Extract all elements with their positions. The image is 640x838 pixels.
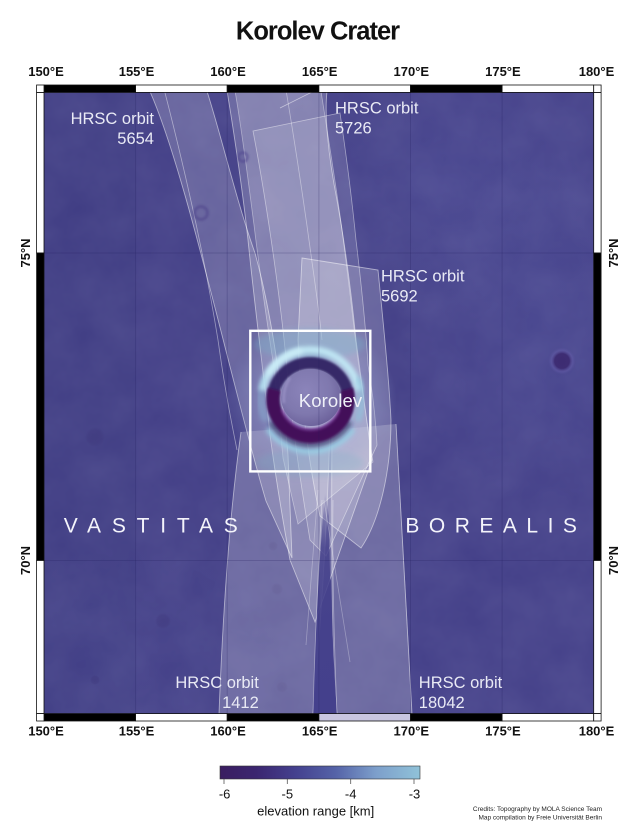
- svg-text:1412: 1412: [222, 694, 259, 712]
- svg-text:HRSC orbit: HRSC orbit: [419, 674, 503, 692]
- svg-text:175°E: 175°E: [485, 723, 521, 738]
- svg-text:165°E: 165°E: [302, 723, 338, 738]
- svg-text:150°E: 150°E: [28, 723, 64, 738]
- svg-text:Credits: Topography by MOLA Sc: Credits: Topography by MOLA Science Team: [473, 806, 602, 813]
- svg-text:150°E: 150°E: [28, 64, 64, 79]
- svg-text:155°E: 155°E: [119, 723, 155, 738]
- svg-text:-4: -4: [345, 787, 357, 802]
- svg-text:5726: 5726: [335, 120, 372, 138]
- svg-text:180°E: 180°E: [579, 64, 615, 79]
- svg-text:BOREALIS: BOREALIS: [405, 514, 586, 537]
- svg-text:175°E: 175°E: [485, 64, 521, 79]
- svg-text:VASTITAS: VASTITAS: [64, 514, 249, 537]
- svg-text:Korolev Crater: Korolev Crater: [236, 18, 400, 46]
- svg-text:170°E: 170°E: [394, 64, 430, 79]
- svg-text:70°N: 70°N: [18, 546, 33, 575]
- svg-text:5654: 5654: [117, 130, 154, 148]
- svg-text:170°E: 170°E: [394, 723, 430, 738]
- svg-text:-5: -5: [282, 787, 294, 802]
- svg-text:160°E: 160°E: [210, 723, 246, 738]
- svg-text:155°E: 155°E: [119, 64, 155, 79]
- svg-text:HRSC orbit: HRSC orbit: [71, 110, 155, 128]
- svg-text:165°E: 165°E: [302, 64, 338, 79]
- svg-text:Korolev: Korolev: [299, 390, 363, 411]
- svg-text:HRSC orbit: HRSC orbit: [381, 268, 465, 286]
- svg-text:75°N: 75°N: [18, 238, 33, 267]
- svg-text:Map compilation by Freie Unive: Map compilation by Freie Universität Ber…: [478, 815, 602, 822]
- svg-text:18042: 18042: [419, 694, 465, 712]
- svg-text:elevation range [km]: elevation range [km]: [257, 804, 374, 819]
- svg-text:HRSC orbit: HRSC orbit: [175, 674, 259, 692]
- svg-text:-6: -6: [219, 787, 231, 802]
- svg-text:160°E: 160°E: [210, 64, 246, 79]
- svg-text:75°N: 75°N: [606, 238, 621, 267]
- svg-text:-3: -3: [409, 787, 421, 802]
- svg-text:HRSC orbit: HRSC orbit: [335, 100, 419, 118]
- svg-text:70°N: 70°N: [606, 546, 621, 575]
- svg-text:180°E: 180°E: [579, 723, 615, 738]
- svg-text:5692: 5692: [381, 288, 418, 306]
